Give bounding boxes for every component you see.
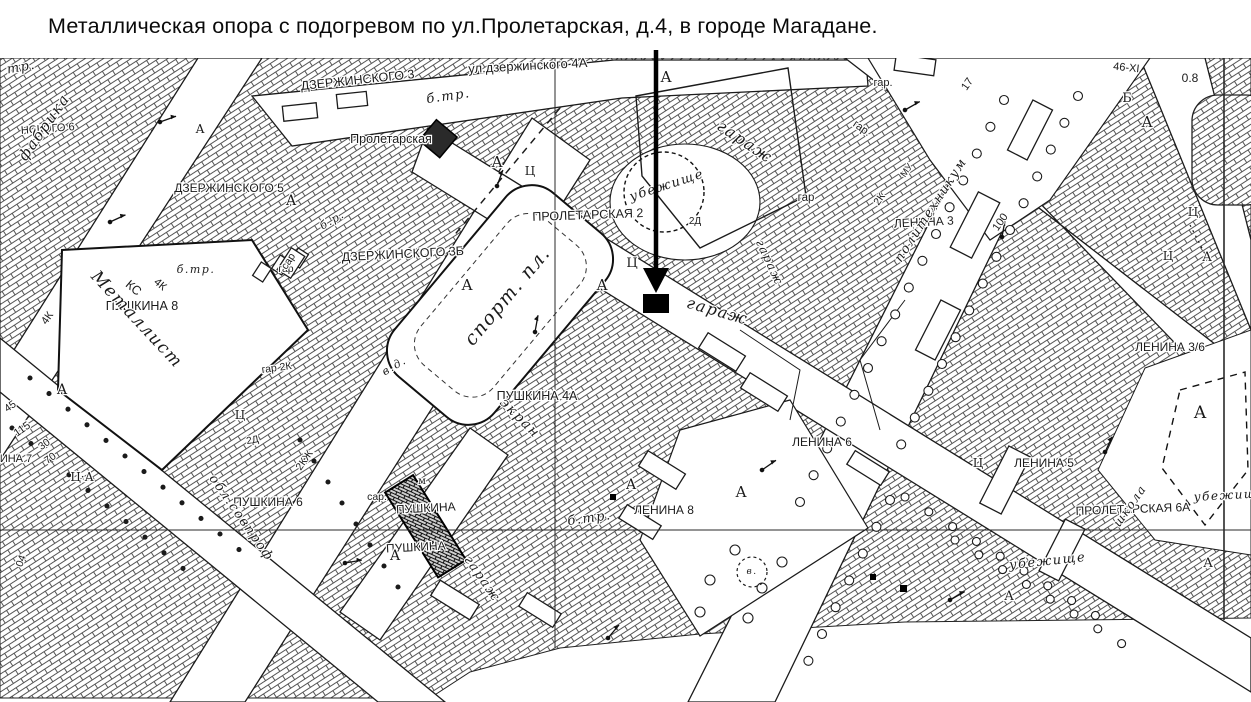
tree-symbol [864,364,873,373]
map-label: ЛЕНИНА 3/6 [1135,340,1205,354]
tree-symbol [996,552,1004,560]
tree-symbol [904,283,913,292]
tree-symbol [872,522,881,531]
map-label: гар. [873,77,892,89]
tree-symbol [1070,610,1078,618]
tree-symbol [999,566,1007,574]
tree-symbol [340,501,344,505]
tree-symbol [29,442,33,446]
tree-symbol [1019,199,1028,208]
tree-symbol [918,256,927,265]
tree-symbol [85,423,89,427]
map-label: ЛЕНИНА 6 [792,435,852,449]
tree-symbol [932,230,941,239]
map-label: ИНА 7 [0,453,32,465]
tree-symbol [28,376,32,380]
tree-symbol [124,520,128,524]
tree-symbol [1118,640,1126,648]
tree-symbol [951,536,959,544]
tree-symbol [965,306,974,315]
map-label: Пролетарская [350,132,432,146]
tree-symbol [877,337,886,346]
tree-symbol [1060,118,1069,127]
map-label: убежище [1192,486,1251,504]
map-label: Ц [1163,249,1174,263]
tree-symbol [326,480,330,484]
map-label: 2Д [246,434,260,447]
tree-symbol [143,535,147,539]
map-label: А [1203,556,1213,571]
tree-symbol [975,551,983,559]
tree-symbol [992,252,1001,261]
building-footprint [282,103,317,121]
tree-symbol [891,310,900,319]
map-label: Ц [525,164,536,178]
map-label: А [286,193,297,209]
map-label: А [596,276,608,294]
tree-symbol [972,149,981,158]
tree-symbol [809,471,818,480]
tree-symbol [104,438,108,442]
map-label: в. [746,567,757,577]
map-label: А [1141,113,1153,131]
tree-symbol [1091,611,1099,619]
map-label: А [1004,589,1014,604]
tree-symbol [1074,92,1083,101]
tree-symbol [1068,597,1076,605]
tree-symbol [161,485,165,489]
map-label: А [660,68,672,86]
map-label: м [418,476,426,487]
tree-symbol [1000,96,1009,105]
map-label: Ц [626,256,637,271]
tree-symbol [396,585,400,589]
map-label: 0.8 [1182,71,1199,85]
tree-symbol [897,440,906,449]
tree-symbol [1022,580,1030,588]
tree-symbol [949,523,957,531]
tree-symbol [218,532,222,536]
map-label: ЛЕНИНА 8 [634,503,694,517]
map-label: А [1202,250,1212,265]
tree-symbol [986,122,995,131]
tree-symbol [181,566,185,570]
tree-symbol [850,390,859,399]
tree-symbol [924,386,933,395]
tree-symbol [66,407,70,411]
tree-symbol [901,493,909,501]
map-label: А [57,382,68,398]
screenshot-root: Металлическая опора с подогревом по ул.П… [0,0,1251,702]
tree-symbol [47,392,51,396]
corner-block-hatch [1192,95,1251,205]
tree-symbol [86,488,90,492]
tree-symbol [978,279,987,288]
tree-symbol [162,551,166,555]
map-label: А [735,483,747,501]
tree-symbol [237,548,241,552]
tree-symbol [910,413,919,422]
map-label: Ц [1188,205,1199,219]
tree-symbol [142,470,146,474]
tree-symbol [180,501,184,505]
map-label: Ц [235,408,246,422]
map-label: Ц·А [70,470,93,484]
tree-symbol [804,656,813,665]
tree-symbol [368,543,372,547]
map-label: сар. [367,491,387,503]
tree-symbol [1006,226,1015,235]
tree-symbol [818,630,827,639]
map-label: А [626,477,637,493]
tree-symbol [945,203,954,212]
tree-symbol [858,549,867,558]
tree-symbol [199,516,203,520]
map-label: А [1194,403,1207,423]
tree-symbol [123,454,127,458]
tree-symbol [925,508,933,516]
tree-symbol [1046,145,1055,154]
map-label: 2Д [689,216,702,227]
map-label: ДЗЕРЖИНСКОГО 5 [174,181,284,195]
tree-symbol [938,360,947,369]
tree-symbol [382,564,386,568]
tree-symbol [845,576,854,585]
map-label: ПУШКИНА 6 [233,495,303,509]
map-label: Ц [973,456,984,470]
tree-symbol [1044,582,1052,590]
tree-symbol [886,496,895,505]
tree-symbol [951,333,960,342]
building-footprint [336,91,367,108]
tree-symbol [1046,595,1054,603]
tree-symbol [312,459,316,463]
tree-symbol [836,417,845,426]
tree-symbol [796,498,805,507]
map-label: А [195,122,204,136]
tree-symbol [831,603,840,612]
tree-symbol [354,522,358,526]
tree-symbol [1033,172,1042,181]
support-marker [643,294,669,313]
map-label: А [390,548,401,564]
map-label: А [461,276,473,294]
map-label: Б [1122,91,1132,106]
map-body: ул.дзержинского 4АДЗЕРЖИНСКОГО 3ДЗЕРЖИНС… [0,54,1251,702]
map-label: А [491,153,503,171]
tree-symbol [1094,625,1102,633]
map-label: ЛЕНИНА 5 [1014,456,1074,470]
tree-symbol [972,537,980,545]
map-label: б.тр. [177,263,216,276]
map-canvas: ул.дзержинского 4АДЗЕРЖИНСКОГО 3ДЗЕРЖИНС… [0,0,1251,702]
tree-symbol [105,504,109,508]
map-label: гар [798,192,815,204]
tree-symbol [298,438,302,442]
